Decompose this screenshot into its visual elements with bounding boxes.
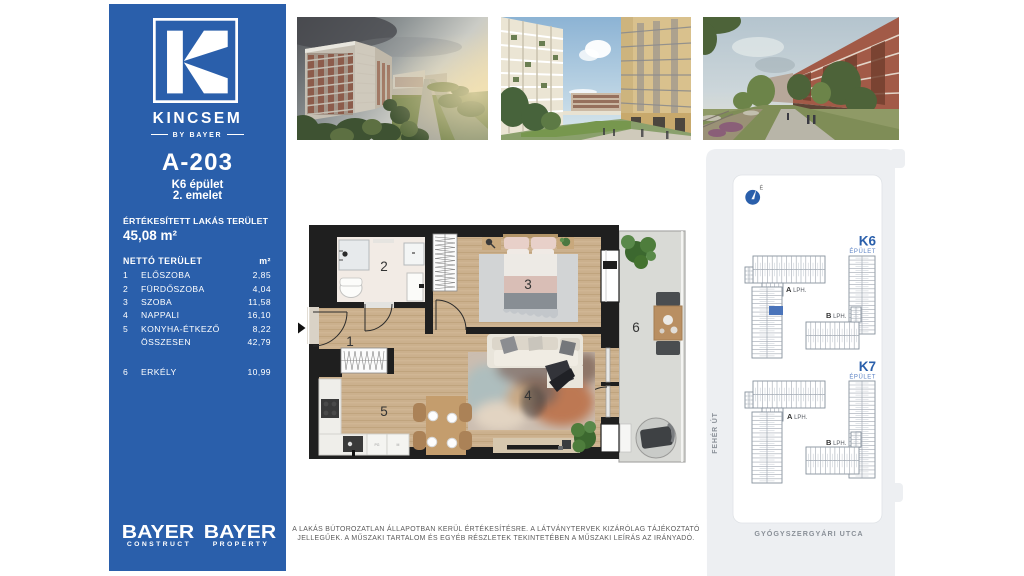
svg-text:1: 1 (346, 334, 354, 349)
svg-text:5: 5 (380, 404, 388, 419)
svg-text:4: 4 (524, 388, 532, 403)
svg-text:GYÓGYSZERGYÁRI UTCA: GYÓGYSZERGYÁRI UTCA (754, 529, 863, 538)
svg-text:K6: K6 (859, 234, 877, 249)
svg-text:ÉPÜLET: ÉPÜLET (849, 248, 876, 255)
svg-text:6: 6 (632, 320, 640, 335)
svg-text:É: É (760, 185, 764, 192)
svg-text:FEHÉR ÚT: FEHÉR ÚT (710, 412, 719, 453)
svg-text:M: M (397, 443, 400, 447)
svg-text:PG: PG (374, 443, 379, 447)
svg-text:2: 2 (380, 259, 388, 274)
svg-text:ÉPÜLET: ÉPÜLET (849, 374, 876, 381)
svg-text:K7: K7 (859, 359, 876, 374)
svg-text:3: 3 (524, 277, 532, 292)
